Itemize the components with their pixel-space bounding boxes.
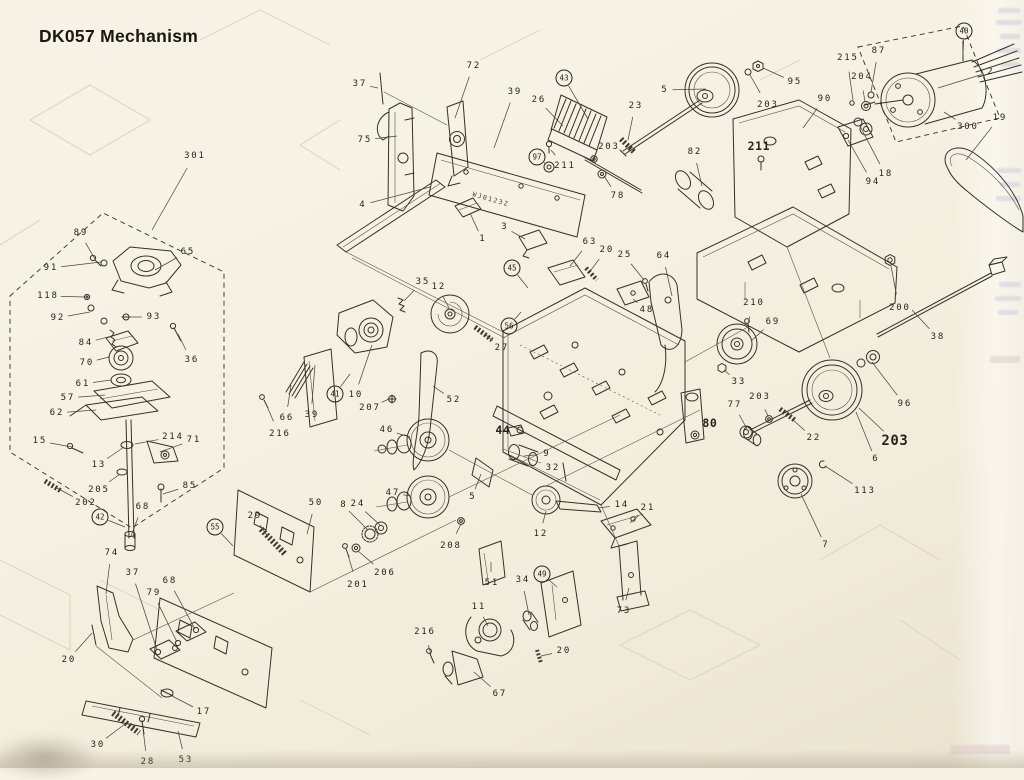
- part-label-41: 41: [327, 386, 344, 403]
- part-label-74: 74: [103, 548, 119, 558]
- part-label-66: 66: [278, 413, 294, 423]
- part-label-85: 85: [181, 481, 197, 491]
- part-label-208: 208: [438, 541, 461, 551]
- part-label-118: 118: [35, 291, 58, 301]
- part-label-95: 95: [786, 77, 802, 87]
- part-label-50: 50: [307, 498, 323, 508]
- part-label-62: 62: [48, 408, 64, 418]
- part-label-73: 73: [615, 606, 631, 616]
- part-label-4: 4: [357, 200, 366, 210]
- part-label-207: 207: [357, 403, 380, 413]
- part-label-18: 18: [877, 169, 893, 179]
- part-label-87: 87: [870, 46, 886, 56]
- part-label-12: 12: [430, 282, 446, 292]
- part-label-37: 37: [124, 568, 140, 578]
- part-label-205: 205: [86, 485, 109, 495]
- part-label-300: 300: [955, 122, 978, 132]
- part-label-70: 70: [78, 358, 94, 368]
- part-label-57: 57: [59, 393, 75, 403]
- part-label-71: 71: [185, 435, 201, 445]
- part-label-36: 36: [183, 355, 199, 365]
- part-label-61: 61: [74, 379, 90, 389]
- part-label-2: 2: [985, 67, 994, 77]
- part-label-206: 206: [372, 568, 395, 578]
- part-label-9: 9: [541, 449, 550, 459]
- part-label-32: 32: [544, 463, 560, 473]
- part-label-51: 51: [483, 578, 499, 588]
- part-label-37: 37: [351, 79, 367, 89]
- part-label-25: 25: [616, 250, 632, 260]
- part-label-91: 91: [42, 263, 58, 273]
- part-label-211: 211: [552, 161, 575, 171]
- part-label-5: 5: [467, 492, 476, 502]
- page-title: DK057 Mechanism: [39, 26, 198, 47]
- part-label-20: 20: [60, 655, 76, 665]
- part-label-215: 215: [835, 53, 858, 63]
- part-label-301: 301: [182, 151, 205, 161]
- part-label-55: 55: [207, 519, 224, 536]
- part-label-43: 43: [556, 70, 573, 87]
- part-label-202: 202: [73, 498, 96, 508]
- part-label-1: 1: [477, 234, 486, 244]
- part-label-27: 27: [493, 343, 509, 353]
- part-label-48: 48: [638, 305, 654, 315]
- part-label-113: 113: [852, 486, 875, 496]
- part-label-12: 12: [532, 529, 548, 539]
- part-label-47: 47: [384, 488, 400, 498]
- part-label-203: 203: [755, 100, 778, 110]
- part-label-69: 69: [764, 317, 780, 327]
- part-label-49: 49: [534, 566, 551, 583]
- part-label-7: 7: [820, 540, 829, 550]
- part-label-56: 56: [501, 318, 518, 335]
- part-label-17: 17: [195, 707, 211, 717]
- part-label-65: 65: [179, 247, 195, 257]
- part-label-14: 14: [613, 500, 629, 510]
- part-label-204: 204: [849, 72, 872, 82]
- part-label-29: 29: [246, 511, 262, 521]
- part-label-23: 23: [627, 101, 643, 111]
- part-label-203: 203: [596, 142, 619, 152]
- part-label-13: 13: [90, 460, 106, 470]
- part-label-216: 216: [412, 627, 435, 637]
- page-bottom-edge: [0, 750, 1024, 768]
- part-label-24: 24: [349, 499, 365, 509]
- part-label-40: 40: [956, 23, 973, 40]
- part-label-52: 52: [445, 395, 461, 405]
- part-label-72: 72: [465, 61, 481, 71]
- part-label-201: 201: [345, 580, 368, 590]
- part-labels: 3018965911189293843670615762152147113205…: [0, 0, 1024, 768]
- part-label-96: 96: [896, 399, 912, 409]
- part-label-20: 20: [598, 245, 614, 255]
- part-label-78: 78: [609, 191, 625, 201]
- scanned-page: WJ0123Z: [0, 0, 1024, 768]
- part-label-89: 89: [72, 228, 88, 238]
- part-label-3: 3: [499, 222, 508, 232]
- part-label-93: 93: [145, 312, 161, 322]
- part-label-84: 84: [77, 338, 93, 348]
- part-label-8: 8: [338, 500, 347, 510]
- part-label-216: 216: [267, 429, 290, 439]
- part-label-26: 26: [530, 95, 546, 105]
- part-label-5: 5: [659, 85, 668, 95]
- part-label-64: 64: [655, 251, 671, 261]
- part-label-68: 68: [134, 502, 150, 512]
- part-label-80: 80: [701, 416, 718, 430]
- part-label-210: 210: [741, 298, 764, 308]
- part-label-22: 22: [805, 433, 821, 443]
- part-label-82: 82: [686, 147, 702, 157]
- part-label-20: 20: [555, 646, 571, 656]
- part-label-46: 46: [378, 425, 394, 435]
- part-label-10: 10: [347, 390, 363, 400]
- part-label-39: 39: [303, 410, 319, 420]
- part-label-214: 214: [160, 432, 183, 442]
- part-label-44: 44: [494, 423, 511, 437]
- part-label-203: 203: [747, 392, 770, 402]
- part-label-6: 6: [870, 454, 879, 464]
- part-label-92: 92: [49, 313, 65, 323]
- part-label-200: 200: [887, 303, 910, 313]
- part-label-211: 211: [746, 139, 770, 153]
- part-label-42: 42: [92, 509, 109, 526]
- part-label-79: 79: [145, 588, 161, 598]
- part-label-68: 68: [161, 576, 177, 586]
- part-label-77: 77: [726, 400, 742, 410]
- part-label-35: 35: [414, 277, 430, 287]
- part-label-75: 75: [356, 135, 372, 145]
- part-label-90: 90: [816, 94, 832, 104]
- part-label-45: 45: [504, 260, 521, 277]
- part-label-34: 34: [514, 575, 530, 585]
- part-label-19: 19: [991, 113, 1007, 123]
- part-label-15: 15: [31, 436, 47, 446]
- part-label-21: 21: [639, 503, 655, 513]
- part-label-38: 38: [929, 332, 945, 342]
- part-label-11: 11: [470, 602, 486, 612]
- part-label-39: 39: [506, 87, 522, 97]
- part-label-63: 63: [581, 237, 597, 247]
- part-label-67: 67: [491, 689, 507, 699]
- part-label-203: 203: [880, 433, 909, 449]
- part-label-33: 33: [730, 377, 746, 387]
- part-label-97: 97: [529, 149, 546, 166]
